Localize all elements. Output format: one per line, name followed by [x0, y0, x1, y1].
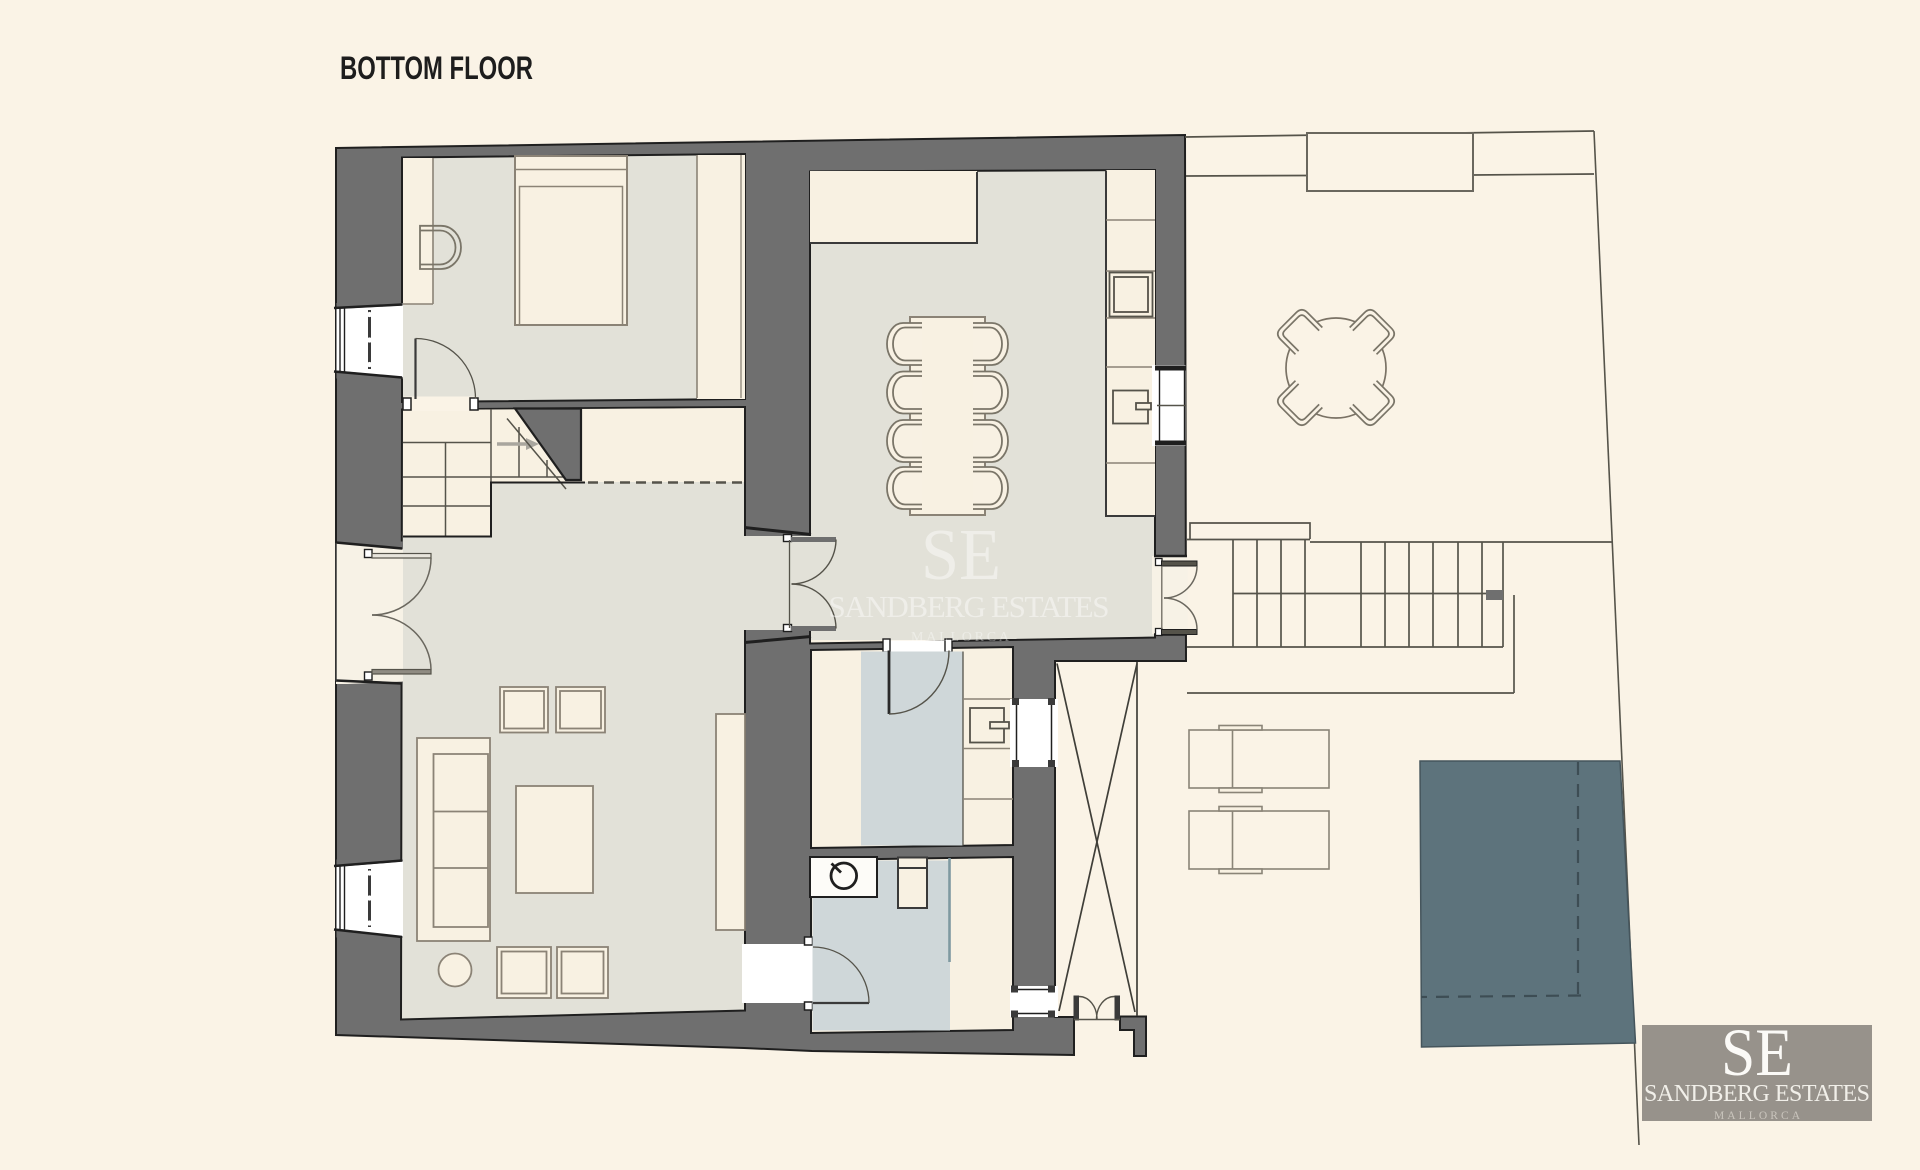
svg-text:SANDBERG ESTATES: SANDBERG ESTATES: [829, 589, 1110, 624]
svg-text:SE: SE: [1721, 1014, 1793, 1090]
svg-text:SE: SE: [921, 514, 1001, 595]
svg-text:SANDBERG ESTATES: SANDBERG ESTATES: [1644, 1081, 1870, 1107]
svg-text:BOTTOM FLOOR: BOTTOM FLOOR: [340, 50, 533, 86]
